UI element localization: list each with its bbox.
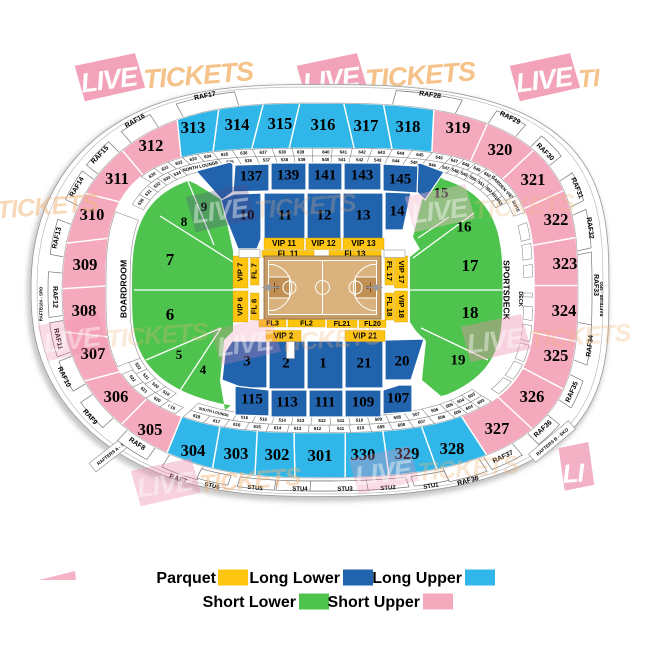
svg-text:18: 18: [462, 303, 479, 322]
svg-text:640: 640: [322, 149, 330, 154]
svg-text:145: 145: [389, 171, 412, 187]
svg-text:643: 643: [378, 150, 386, 155]
svg-text:541: 541: [338, 157, 346, 162]
svg-text:609: 609: [377, 424, 385, 430]
svg-text:5: 5: [176, 347, 183, 362]
svg-text:537: 537: [263, 157, 271, 162]
svg-text:20: 20: [395, 353, 410, 369]
svg-text:FL2: FL2: [300, 318, 313, 327]
svg-text:610: 610: [357, 425, 365, 430]
svg-text:644: 644: [397, 150, 405, 155]
svg-text:611: 611: [337, 426, 345, 431]
svg-text:538: 538: [281, 157, 289, 162]
svg-text:320: 320: [488, 140, 513, 159]
svg-text:FL 17: FL 17: [385, 261, 394, 281]
svg-text:321: 321: [521, 170, 546, 189]
svg-text:Short Upper: Short Upper: [328, 594, 420, 611]
svg-text:536: 536: [244, 158, 252, 163]
svg-text:511: 511: [337, 418, 345, 423]
svg-text:8: 8: [181, 214, 188, 229]
svg-text:141: 141: [314, 167, 337, 183]
svg-text:326: 326: [520, 387, 545, 406]
svg-text:19: 19: [451, 352, 466, 368]
svg-text:319: 319: [446, 118, 471, 137]
svg-text:RAF12: RAF12: [51, 286, 58, 308]
svg-text:512: 512: [318, 418, 326, 423]
svg-text:515: 515: [259, 416, 267, 422]
svg-text:514: 514: [278, 418, 286, 423]
svg-text:636: 636: [240, 150, 248, 155]
svg-text:612: 612: [314, 426, 322, 431]
svg-text:327: 327: [485, 419, 510, 438]
svg-text:VIP 12: VIP 12: [311, 239, 336, 248]
svg-text:323: 323: [553, 254, 578, 273]
svg-text:1: 1: [319, 355, 327, 371]
svg-text:113: 113: [276, 394, 298, 410]
svg-text:306: 306: [104, 387, 129, 406]
svg-text:313: 313: [181, 118, 206, 137]
svg-text:318: 318: [396, 117, 421, 136]
svg-text:FL 18: FL 18: [385, 297, 394, 318]
svg-text:143: 143: [351, 167, 374, 183]
svg-text:139: 139: [277, 167, 300, 183]
svg-text:STU3: STU3: [337, 486, 353, 492]
svg-text:508: 508: [393, 414, 401, 420]
svg-text:637: 637: [259, 150, 267, 155]
svg-text:303: 303: [224, 444, 249, 463]
svg-text:635: 635: [221, 151, 229, 157]
svg-text:FL 6: FL 6: [250, 299, 259, 315]
svg-text:VIP 6: VIP 6: [236, 297, 245, 316]
svg-text:FL 7: FL 7: [250, 263, 259, 279]
svg-text:317: 317: [354, 116, 379, 135]
svg-text:510: 510: [356, 418, 364, 423]
svg-text:109: 109: [352, 394, 375, 410]
svg-text:Long Lower: Long Lower: [249, 570, 340, 587]
svg-text:614: 614: [274, 425, 282, 430]
svg-text:VIP 11: VIP 11: [272, 239, 296, 248]
svg-text:VIP 17: VIP 17: [397, 261, 406, 284]
svg-text:Short Lower: Short Lower: [203, 594, 296, 611]
svg-text:316: 316: [311, 115, 336, 134]
svg-text:616: 616: [233, 422, 241, 428]
svg-text:608: 608: [397, 422, 405, 428]
svg-text:14: 14: [390, 203, 406, 219]
svg-text:311: 311: [105, 169, 129, 188]
svg-text:312: 312: [139, 136, 164, 155]
svg-text:539: 539: [298, 157, 306, 162]
svg-text:Parquet: Parquet: [156, 570, 216, 587]
svg-text:107: 107: [387, 390, 410, 406]
svg-text:LI: LI: [561, 457, 586, 489]
svg-text:13: 13: [356, 207, 371, 223]
svg-text:111: 111: [315, 394, 336, 410]
svg-text:540: 540: [322, 157, 330, 162]
svg-text:641: 641: [340, 149, 348, 154]
svg-text:543: 543: [374, 157, 382, 162]
svg-text:309: 309: [73, 255, 98, 274]
svg-text:4: 4: [200, 362, 207, 377]
svg-text:RAF33: RAF33: [592, 274, 599, 296]
svg-text:542: 542: [356, 157, 364, 162]
svg-text:324: 324: [552, 301, 577, 320]
svg-text:21: 21: [357, 355, 372, 371]
svg-text:544: 544: [392, 158, 400, 163]
svg-text:305: 305: [138, 420, 163, 439]
svg-text:638: 638: [279, 149, 287, 154]
svg-text:RAFTB18A - SRO: RAFTB18A - SRO: [39, 286, 44, 321]
svg-text:301: 301: [308, 446, 333, 465]
svg-text:615: 615: [253, 424, 261, 430]
svg-text:613: 613: [294, 426, 302, 431]
svg-text:7: 7: [166, 250, 175, 269]
svg-text:VIP 7: VIP 7: [236, 263, 245, 282]
svg-text:BOARDROOM: BOARDROOM: [118, 260, 128, 318]
svg-text:VIP 18: VIP 18: [397, 295, 406, 319]
svg-text:304: 304: [181, 441, 206, 460]
svg-text:314: 314: [225, 115, 250, 134]
svg-text:639: 639: [297, 149, 305, 154]
svg-text:642: 642: [358, 150, 366, 155]
svg-text:137: 137: [240, 168, 263, 184]
svg-text:17: 17: [462, 256, 480, 275]
svg-text:DECK: DECK: [517, 291, 523, 306]
svg-text:513: 513: [297, 418, 305, 423]
svg-text:645: 645: [416, 152, 424, 158]
svg-text:VIP 13: VIP 13: [351, 239, 376, 248]
svg-text:115: 115: [241, 391, 263, 407]
svg-text:315: 315: [268, 114, 293, 133]
svg-text:SPORTSDECK: SPORTSDECK: [502, 260, 512, 320]
svg-text:Long Upper: Long Upper: [372, 570, 462, 587]
svg-text:302: 302: [265, 445, 290, 464]
